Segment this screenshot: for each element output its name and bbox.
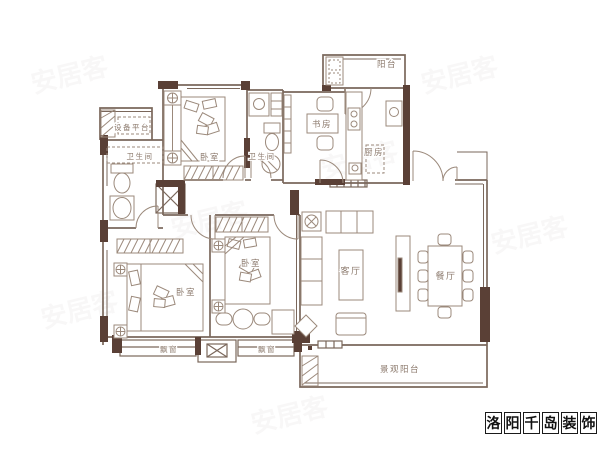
bay-window-left-shape	[120, 340, 196, 356]
brand-char: 岛	[542, 412, 559, 434]
label-bay-window-left: 飘窗	[160, 344, 178, 354]
label-dining-room: 餐厅	[435, 270, 456, 281]
chair-icon	[418, 251, 428, 263]
floor-plan-page: 安居客 安居客 安居客 安居客 安居客 安居客 安居客	[0, 0, 600, 450]
floor-plan-drawing: 阳台 厨房 书房 卫生间 卫生间 卧室 卧室 卧室 客厅 餐厅 飘窗 飘窗 景观…	[0, 0, 600, 450]
brand-char: 阳	[504, 412, 521, 434]
label-bathroom-top: 卫生间	[249, 151, 276, 161]
label-study: 书房	[312, 119, 332, 129]
bathroom-top-fixtures	[249, 93, 282, 173]
brand-char: 饰	[580, 412, 597, 434]
chair-icon	[438, 234, 451, 245]
toilet-icon	[264, 123, 280, 133]
washing-machine-icon	[326, 57, 343, 85]
sofa-icon	[326, 211, 373, 233]
label-bedroom-left: 卧室	[176, 287, 196, 297]
label-kitchen: 厨房	[364, 147, 384, 157]
chaise-icon	[301, 237, 322, 305]
tv-icon	[398, 258, 402, 292]
chair-icon	[254, 313, 270, 325]
vanity-icon	[249, 93, 269, 116]
label-bedroom-middle: 卧室	[241, 258, 261, 268]
chair-icon	[418, 289, 428, 301]
label-equipment-platform: 设备平台	[114, 122, 150, 132]
label-balcony: 阳台	[377, 59, 397, 69]
chair-icon	[463, 270, 473, 282]
brand-watermark: 洛 阳 千 岛 装 饰	[483, 412, 597, 434]
door-arc-bedroom-left	[191, 215, 215, 239]
table-icon	[233, 309, 253, 329]
brand-char: 洛	[485, 412, 502, 434]
label-living-room: 客厅	[340, 265, 361, 276]
brand-char: 装	[561, 412, 578, 434]
chair-icon	[317, 136, 333, 150]
door-arc-bathroom-left	[136, 206, 158, 228]
door-arc-bedroom-middle	[274, 215, 298, 239]
kitchen-counter-icon	[346, 92, 402, 180]
desk-icon	[272, 310, 294, 334]
label-bathroom-left: 卫生间	[127, 151, 154, 161]
chair-icon	[418, 270, 428, 282]
balcony-door-sill	[318, 341, 342, 348]
label-view-balcony: 景观阳台	[380, 364, 420, 374]
balcony-cabinet-icon	[302, 356, 318, 386]
chair-icon	[216, 313, 232, 325]
toilet-icon	[111, 164, 133, 173]
bedroom-top-furniture	[164, 91, 243, 180]
brand-char: 千	[523, 412, 540, 434]
label-bay-window-right: 飘窗	[258, 344, 276, 354]
label-bedroom-top: 卧室	[200, 152, 220, 162]
bookshelf-icon	[284, 95, 291, 153]
bedroom-middle-furniture	[212, 217, 294, 334]
chair-icon	[317, 97, 333, 111]
chair-icon	[463, 289, 473, 301]
chair-icon	[438, 307, 451, 318]
door-arc-entry-main	[413, 151, 443, 181]
door-arc-bedroom-top	[223, 156, 245, 178]
armchair-icon	[336, 313, 366, 335]
chair-icon	[463, 251, 473, 263]
cabinet-icon	[271, 93, 282, 116]
door-arc-entry-leaf	[443, 167, 457, 181]
